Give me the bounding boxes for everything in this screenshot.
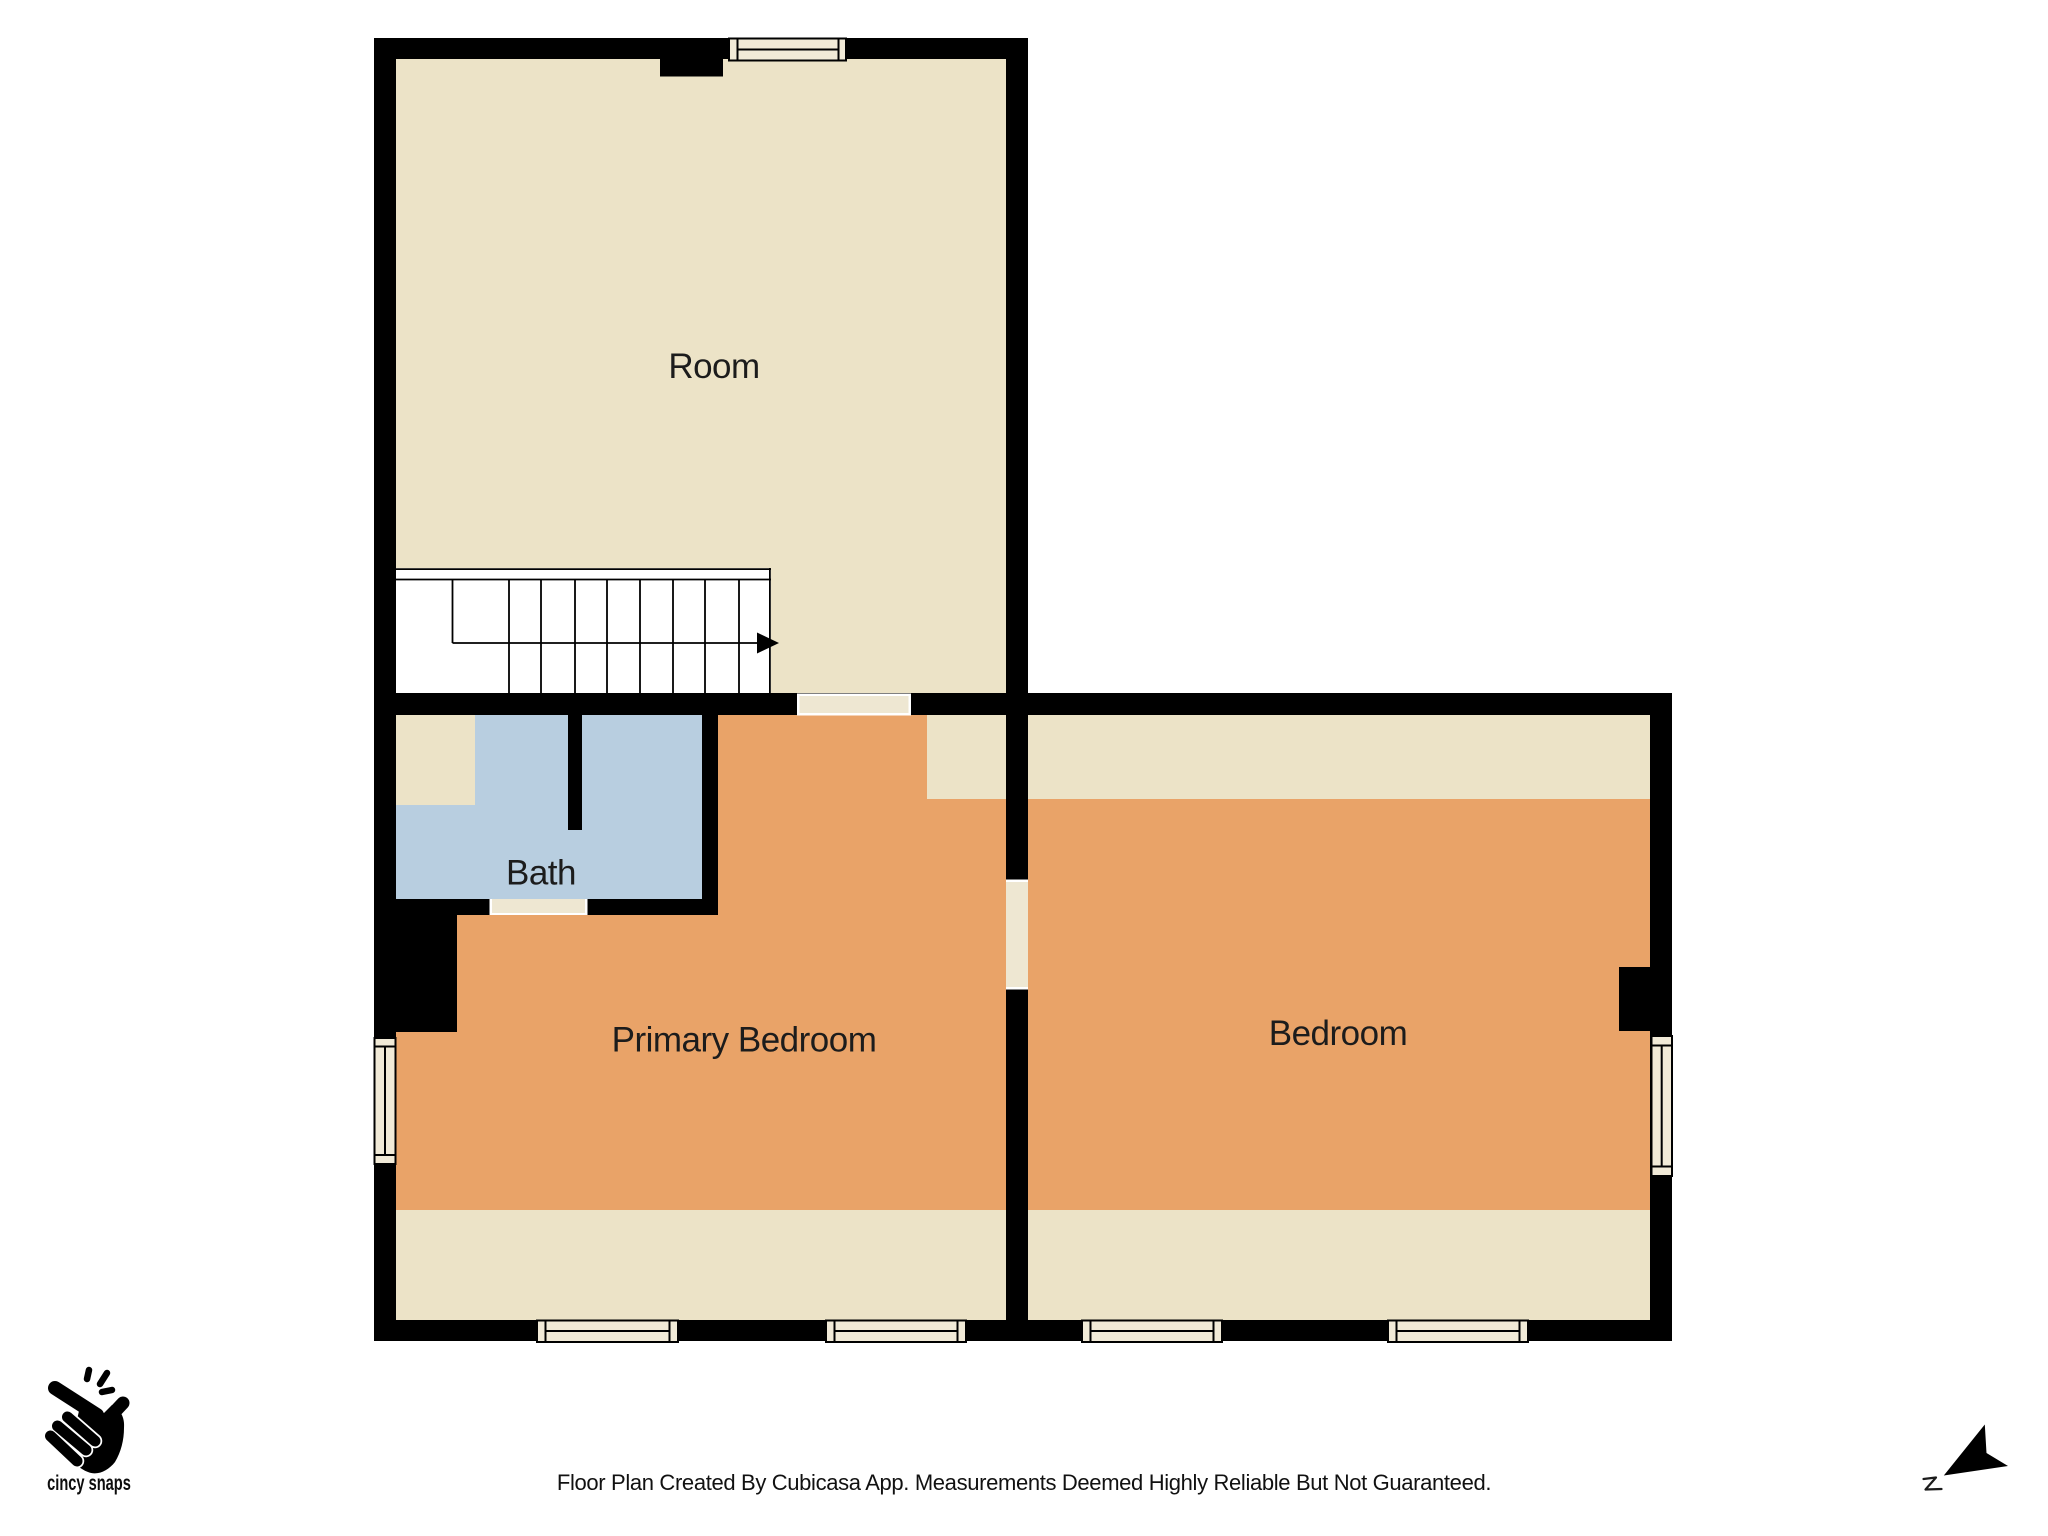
svg-text:Floor Plan Created By Cubicasa: Floor Plan Created By Cubicasa App. Meas…	[557, 1470, 1491, 1495]
svg-text:Bath: Bath	[506, 854, 576, 893]
svg-text:Room: Room	[668, 347, 759, 386]
svg-text:Primary Bedroom: Primary Bedroom	[612, 1021, 877, 1060]
svg-text:cincy snaps: cincy snaps	[47, 1470, 131, 1495]
svg-text:Bedroom: Bedroom	[1269, 1014, 1408, 1053]
